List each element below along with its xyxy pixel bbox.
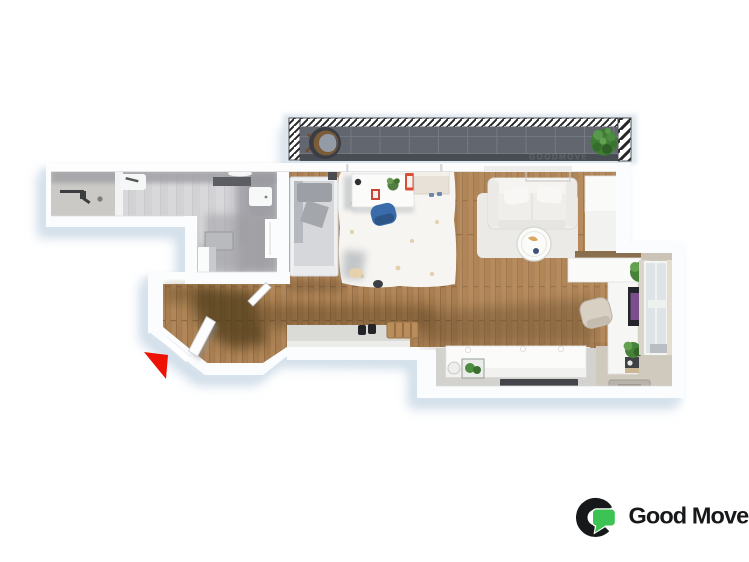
svg-text:GOODMOVE: GOODMOVE bbox=[529, 153, 588, 162]
svg-text:Good Move: Good Move bbox=[629, 503, 749, 529]
